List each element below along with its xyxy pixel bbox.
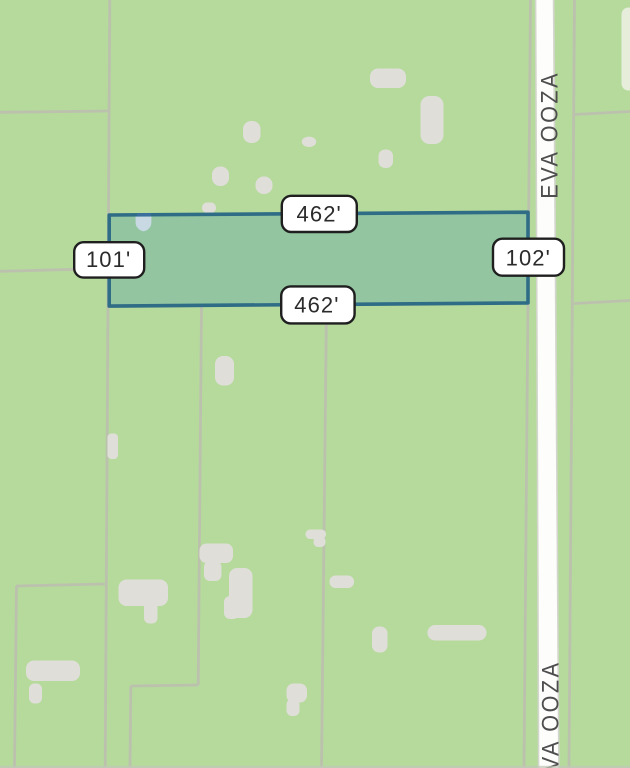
svg-text:EVA OOZA: EVA OOZA [535, 71, 562, 199]
svg-text:102': 102' [506, 245, 551, 270]
svg-text:462': 462' [294, 293, 339, 318]
svg-text:462': 462' [297, 202, 342, 227]
svg-text:101': 101' [86, 247, 131, 272]
svg-text:EVA OOZA: EVA OOZA [536, 660, 563, 768]
